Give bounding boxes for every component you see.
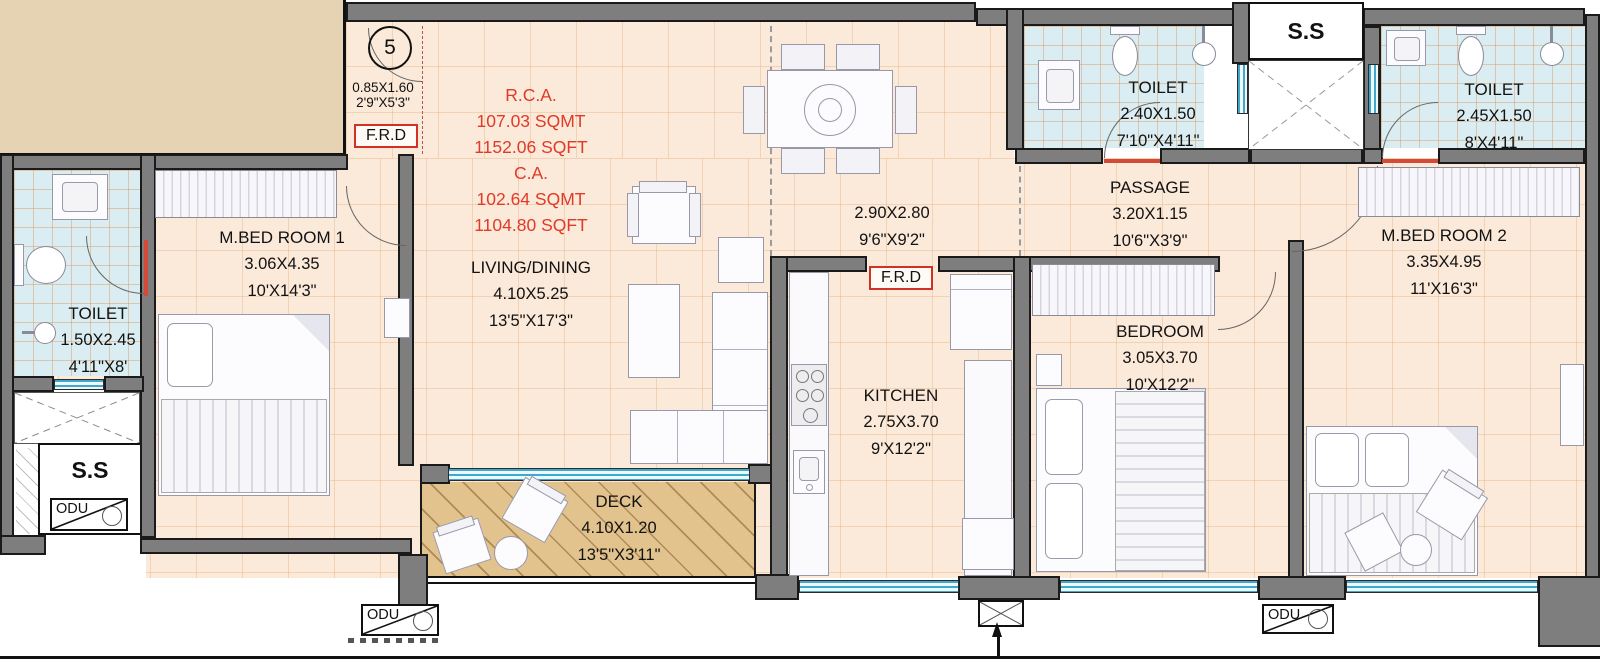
dining-chair [781,44,825,70]
wall [755,574,799,600]
dining-chair [895,86,917,134]
room-label-toilet3: TOILET 2.45X1.50 8'X4'11" [1456,76,1531,157]
wall [420,464,450,484]
wall [1363,148,1383,164]
ss-top-label: S.S [1250,18,1362,45]
dining-table [767,70,893,148]
kitchen-sink [793,450,825,494]
window [448,468,750,481]
wall [1363,8,1585,26]
railing-dots [348,638,440,643]
wall [1288,240,1304,578]
toilet-wc-icon [1458,36,1484,76]
deck-table [494,536,528,570]
shower-icon [34,322,56,344]
wall [140,154,156,538]
dining-chair [836,148,880,174]
toilet-wc-icon [26,246,66,284]
room-label-mbed2: M.BED ROOM 2 3.35X4.95 11'X16'3" [1381,222,1507,303]
unit-number-badge: 5 [368,26,412,70]
service-shaft-top: S.S [1248,2,1364,60]
coffee-table [628,284,680,378]
entry-door-dims: 0.85X1.60 2'9"X5'3" [352,80,414,110]
entry-dim-ft: 2'9"X5'3" [352,95,414,110]
rca-title: R.C.A. [474,82,588,108]
toilet-wc-icon [1112,36,1138,76]
odu-left-label: ODU [56,501,88,517]
bed [158,314,330,496]
room-label-deck: DECK 4.10X1.20 13'5"X3'11" [578,488,661,569]
dresser [1560,364,1584,446]
window [1368,64,1379,114]
room-label-bedroom: BEDROOM 3.05X3.70 10'X12'2" [1116,318,1204,399]
opening-dashed [1019,166,1021,256]
ca-sqmt: 102.64 SQMT [474,186,588,212]
bed [1036,388,1206,572]
room-label-passage: PASSAGE 3.20X1.15 10'6"X3'9" [1110,174,1190,255]
washbasin [1386,30,1426,66]
odu-bl-label: ODU [367,607,399,623]
wall [346,2,976,22]
opening-dashed [422,26,423,154]
ca-sqft: 1104.80 SQFT [474,212,588,238]
wardrobe [155,170,337,218]
appliance [962,518,1014,570]
wardrobe [1358,167,1580,217]
wall [140,538,412,554]
entry-dim-m: 0.85X1.60 [352,80,414,95]
ca-title: C.A. [474,160,588,186]
door-threshold [1104,159,1160,163]
wall [770,256,788,576]
shaft-cross-top [1248,60,1364,150]
deck-edge [418,576,758,584]
wall [1006,8,1024,150]
door-threshold [1382,159,1438,163]
odu-br-fan-icon [1308,609,1328,629]
wall [398,554,428,606]
window [1346,580,1538,593]
north-entry-arrow-icon [992,622,1002,637]
room-label-foyer: 2.90X2.80 9'6"X9'2" [854,200,929,254]
side-table [718,237,764,283]
wall [958,576,1060,600]
dining-chair [836,44,880,70]
wall [1258,576,1346,600]
washbasin [1038,60,1080,110]
stove [791,364,827,426]
washbasin [52,174,108,220]
odu-left-fan-icon [102,506,122,526]
armchair [632,186,696,244]
adjacent-unit-block [0,0,346,156]
floor-plan: S.S ODU [0,0,1600,664]
ss-left-label: S.S [40,457,140,484]
wall [0,154,14,540]
refrigerator [950,274,1012,350]
sofa [630,410,768,464]
shower-arm [22,331,34,334]
dining-chair [743,86,765,134]
duct-left [14,392,140,444]
wall [0,535,46,555]
toilet-tank [14,244,24,286]
room-label-living: LIVING/DINING 4.10X5.25 13'5"X17'3" [471,254,591,335]
room-label-toilet2: TOILET 2.40X1.50 7'10"X4'11" [1117,74,1200,155]
wall [1015,148,1103,164]
shower-icon [1192,42,1216,66]
odu-br-label: ODU [1268,607,1300,623]
frd-door-entry: F.R.D [354,124,418,148]
odu-unit-bottom-left: ODU [361,604,439,636]
window [1060,580,1258,593]
arrow-shaft [997,636,1000,658]
wall [1538,576,1600,647]
nightstand [1036,354,1062,386]
odu-unit-bottom-right: ODU [1262,604,1334,634]
window [1237,64,1248,114]
room-label-mbed1: M.BED ROOM 1 3.06X4.35 10'X14'3" [219,224,345,305]
rca-area-label: R.C.A. 107.03 SQMT 1152.06 SQFT [474,82,588,160]
shower-icon [1540,42,1564,66]
nightstand [384,298,410,338]
ca-area-label: C.A. 102.64 SQMT 1104.80 SQFT [474,160,588,238]
odu-bl-fan-icon [413,611,433,631]
site-boundary-line [0,656,1600,659]
door-threshold [144,240,148,296]
rca-sqft: 1152.06 SQFT [474,134,588,160]
wall [1013,256,1031,578]
toilet-tank [1456,26,1486,35]
toilet-tank [1110,26,1140,35]
hatch-strip [16,448,38,534]
wall [1585,14,1600,578]
window [799,580,959,593]
rca-sqmt: 107.03 SQMT [474,108,588,134]
wardrobe [1032,264,1215,316]
odu-unit-left: ODU [50,498,128,531]
wall [0,154,348,170]
frd-door-kitchen: F.R.D [869,266,933,290]
side-table [1400,534,1432,566]
dining-chair [781,148,825,174]
room-label-kitchen: KITCHEN 2.75X3.70 9'X12'2" [863,382,938,463]
room-label-toilet1: TOILET 1.50X2.45 4'11"X8' [60,300,135,381]
wall [12,376,54,392]
